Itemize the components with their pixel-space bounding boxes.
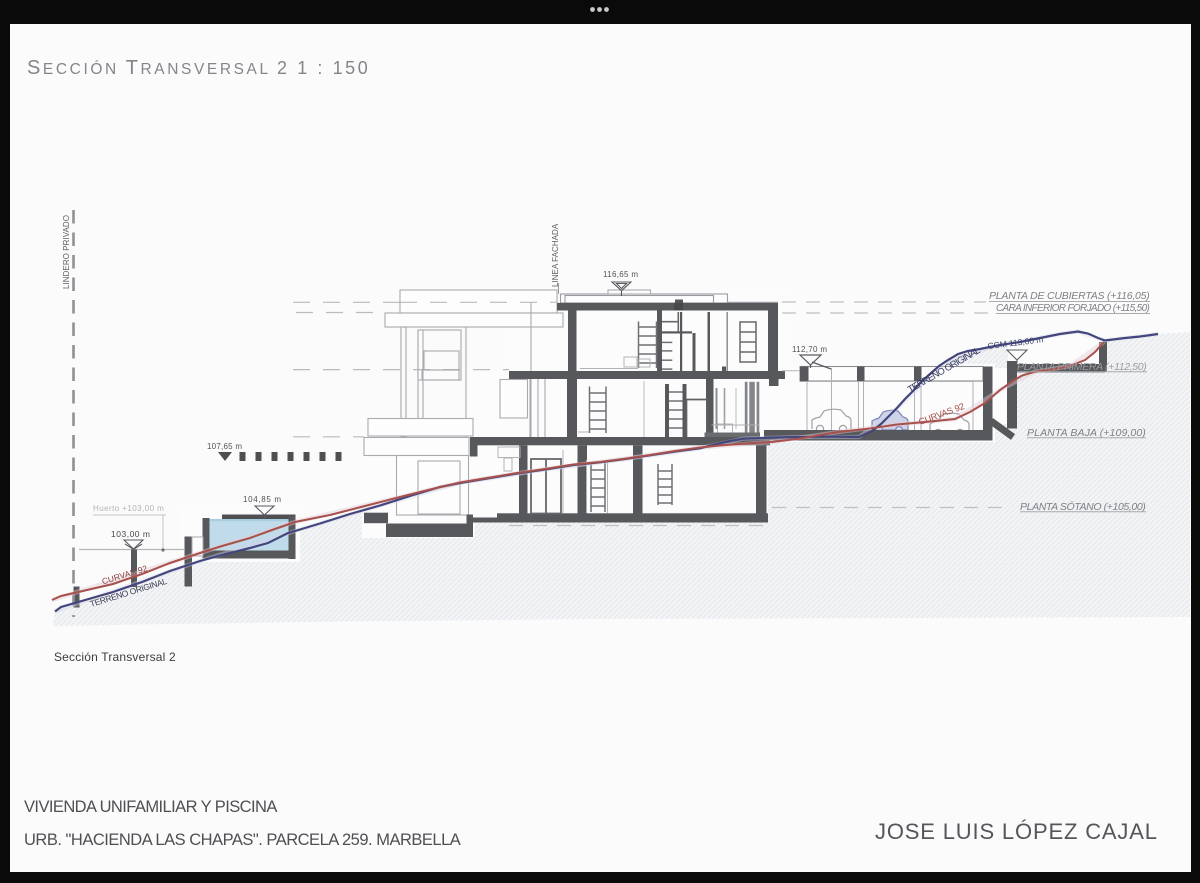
svg-text:116,65 m: 116,65 m [603,270,638,279]
svg-text:JOSE LUIS LÓPEZ CAJAL: JOSE LUIS LÓPEZ CAJAL [875,819,1159,844]
svg-text:SECCIÓN TRANSVERSAL 2 1 : 150: SECCIÓN TRANSVERSAL 2 1 : 150 [27,57,370,79]
svg-text:URB. "HACIENDA LAS CHAPAS". PA: URB. "HACIENDA LAS CHAPAS". PARCELA 259.… [24,831,462,849]
svg-text:LINDERO PRIVADO: LINDERO PRIVADO [62,214,71,289]
svg-text:PLANTA PRIMERA (+112,50): PLANTA PRIMERA (+112,50) [1017,361,1147,373]
svg-text:VIVIENDA UNIFAMILIAR Y PISCINA: VIVIENDA UNIFAMILIAR Y PISCINA [24,798,279,816]
svg-text:104,85 m: 104,85 m [243,495,281,504]
svg-text:PLANTA SÓTANO (+105,00): PLANTA SÓTANO (+105,00) [1020,500,1146,513]
svg-text:PLANTA DE CUBIERTAS (+116,05): PLANTA DE CUBIERTAS (+116,05) [989,290,1150,302]
svg-text:107,65 m: 107,65 m [207,442,242,451]
svg-text:103,00 m: 103,00 m [111,529,150,539]
svg-text:PLANTA BAJA (+109,00): PLANTA BAJA (+109,00) [1027,427,1146,439]
svg-text:LINEA FACHADA: LINEA FACHADA [551,223,560,287]
svg-text:Sección Transversal 2: Sección Transversal 2 [54,650,176,664]
svg-text:112,70 m: 112,70 m [792,345,827,354]
svg-text:Huerto +103,00 m: Huerto +103,00 m [93,504,164,513]
svg-text:CARA INFERIOR FORJADO (+115,50: CARA INFERIOR FORJADO (+115,50) [996,303,1150,314]
